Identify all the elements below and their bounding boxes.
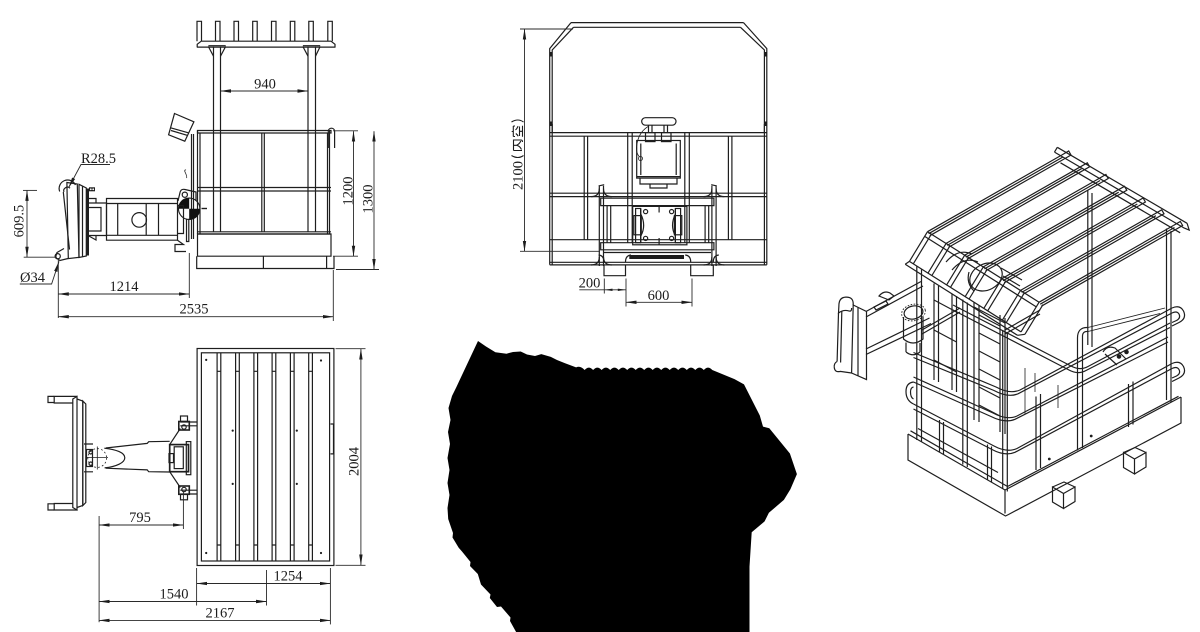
svg-text:1200: 1200 bbox=[341, 177, 357, 206]
svg-text:600: 600 bbox=[648, 288, 670, 304]
svg-text:1214: 1214 bbox=[110, 279, 140, 295]
svg-text:1300: 1300 bbox=[361, 185, 377, 214]
svg-text:1540: 1540 bbox=[160, 587, 189, 603]
svg-text:200: 200 bbox=[579, 276, 601, 292]
svg-text:609.5: 609.5 bbox=[12, 205, 28, 238]
svg-text:2535: 2535 bbox=[180, 302, 209, 318]
svg-text:2004: 2004 bbox=[347, 446, 363, 476]
svg-text:940: 940 bbox=[254, 77, 276, 93]
svg-text:2100: 2100 bbox=[511, 161, 527, 190]
svg-text:1254: 1254 bbox=[274, 569, 304, 585]
svg-text:2167: 2167 bbox=[206, 606, 235, 622]
svg-text:795: 795 bbox=[129, 510, 151, 526]
